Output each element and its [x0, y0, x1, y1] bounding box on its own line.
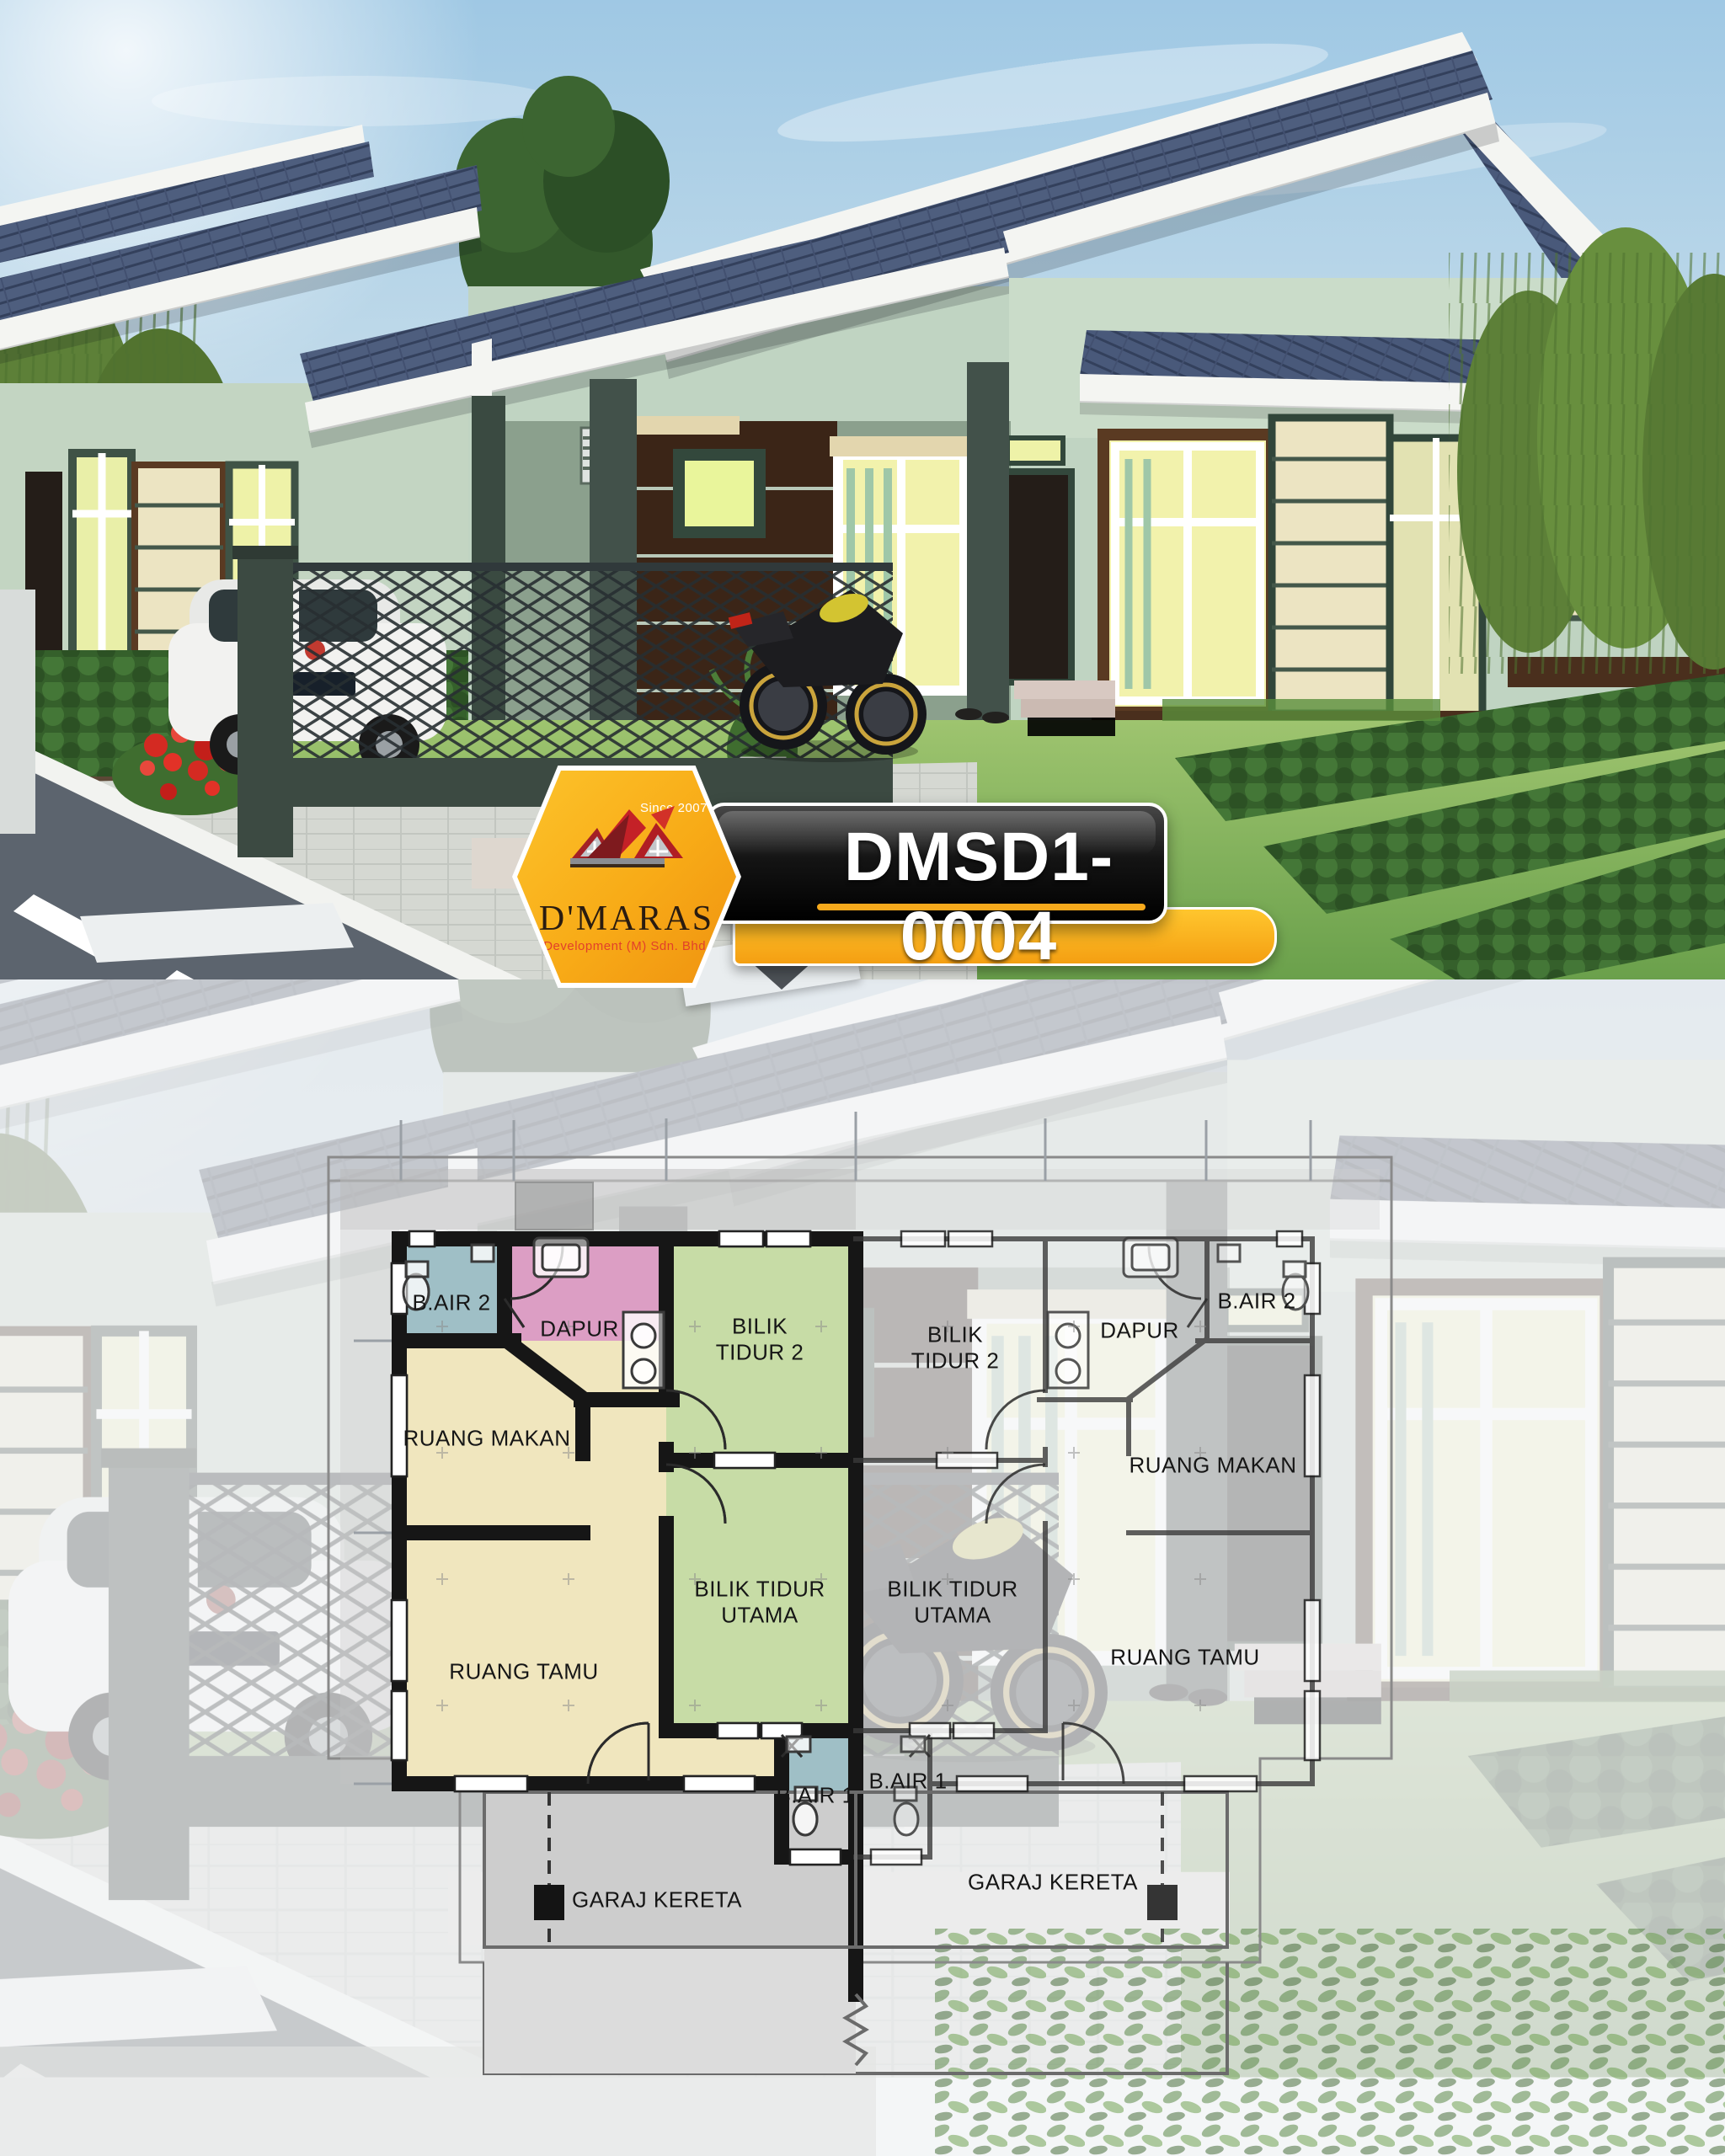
logo-name: D'MARAS — [517, 899, 736, 939]
label-left-bair2: B.AIR 2 — [412, 1290, 490, 1316]
gate-pillar — [238, 554, 293, 857]
label-left-bilik2: BILIK TIDUR 2 — [705, 1313, 814, 1364]
driveway-fill — [484, 1947, 856, 2073]
label-right-utama: BILIK TIDUR UTAMA — [877, 1576, 1028, 1627]
kitchen-hood-box — [515, 1182, 593, 1230]
label-right-makan: RUANG MAKAN — [1129, 1453, 1296, 1479]
badge-banner: DMSD1-0004 — [706, 803, 1167, 924]
label-left-garaj: GARAJ KERETA — [572, 1887, 742, 1913]
poster-graphic — [0, 0, 1725, 2156]
dmaras-roofs-icon — [563, 804, 690, 889]
project-badge: DMSD1-0004 Since 2007 D'MARAS Developmen… — [497, 762, 1322, 1023]
poster: B.AIR 2 DAPUR BILIK TIDUR 2 RUANG MAKAN … — [0, 0, 1725, 2156]
apron-right — [856, 1169, 1380, 1230]
label-left-tamu: RUANG TAMU — [449, 1659, 598, 1685]
logo-tagline: Development (M) Sdn. Bhd. — [517, 939, 736, 953]
label-right-dapur: DAPUR — [1100, 1318, 1179, 1344]
willow-trees-right — [1449, 227, 1725, 674]
label-left-bair1: B.AIR 1 — [776, 1783, 854, 1809]
label-left-makan: RUANG MAKAN — [403, 1426, 570, 1452]
logo-hexagon: Since 2007 D'MARAS Development (M) Sdn. … — [512, 766, 741, 988]
front-door — [999, 438, 1071, 682]
label-right-bair2: B.AIR 2 — [1217, 1289, 1295, 1315]
label-right-bilik2: BILIK TIDUR 2 — [900, 1321, 1010, 1373]
label-right-bair1: B.AIR 1 — [868, 1769, 947, 1795]
apron-left — [340, 1169, 856, 1230]
label-left-dapur: DAPUR — [540, 1316, 619, 1342]
label-right-tamu: RUANG TAMU — [1110, 1645, 1259, 1671]
small-square-window — [679, 455, 760, 532]
project-code: DMSD1-0004 — [802, 818, 1156, 976]
badge-underline — [817, 904, 1146, 910]
label-right-garaj: GARAJ KERETA — [968, 1870, 1138, 1896]
label-left-utama: BILIK TIDUR UTAMA — [684, 1576, 836, 1627]
